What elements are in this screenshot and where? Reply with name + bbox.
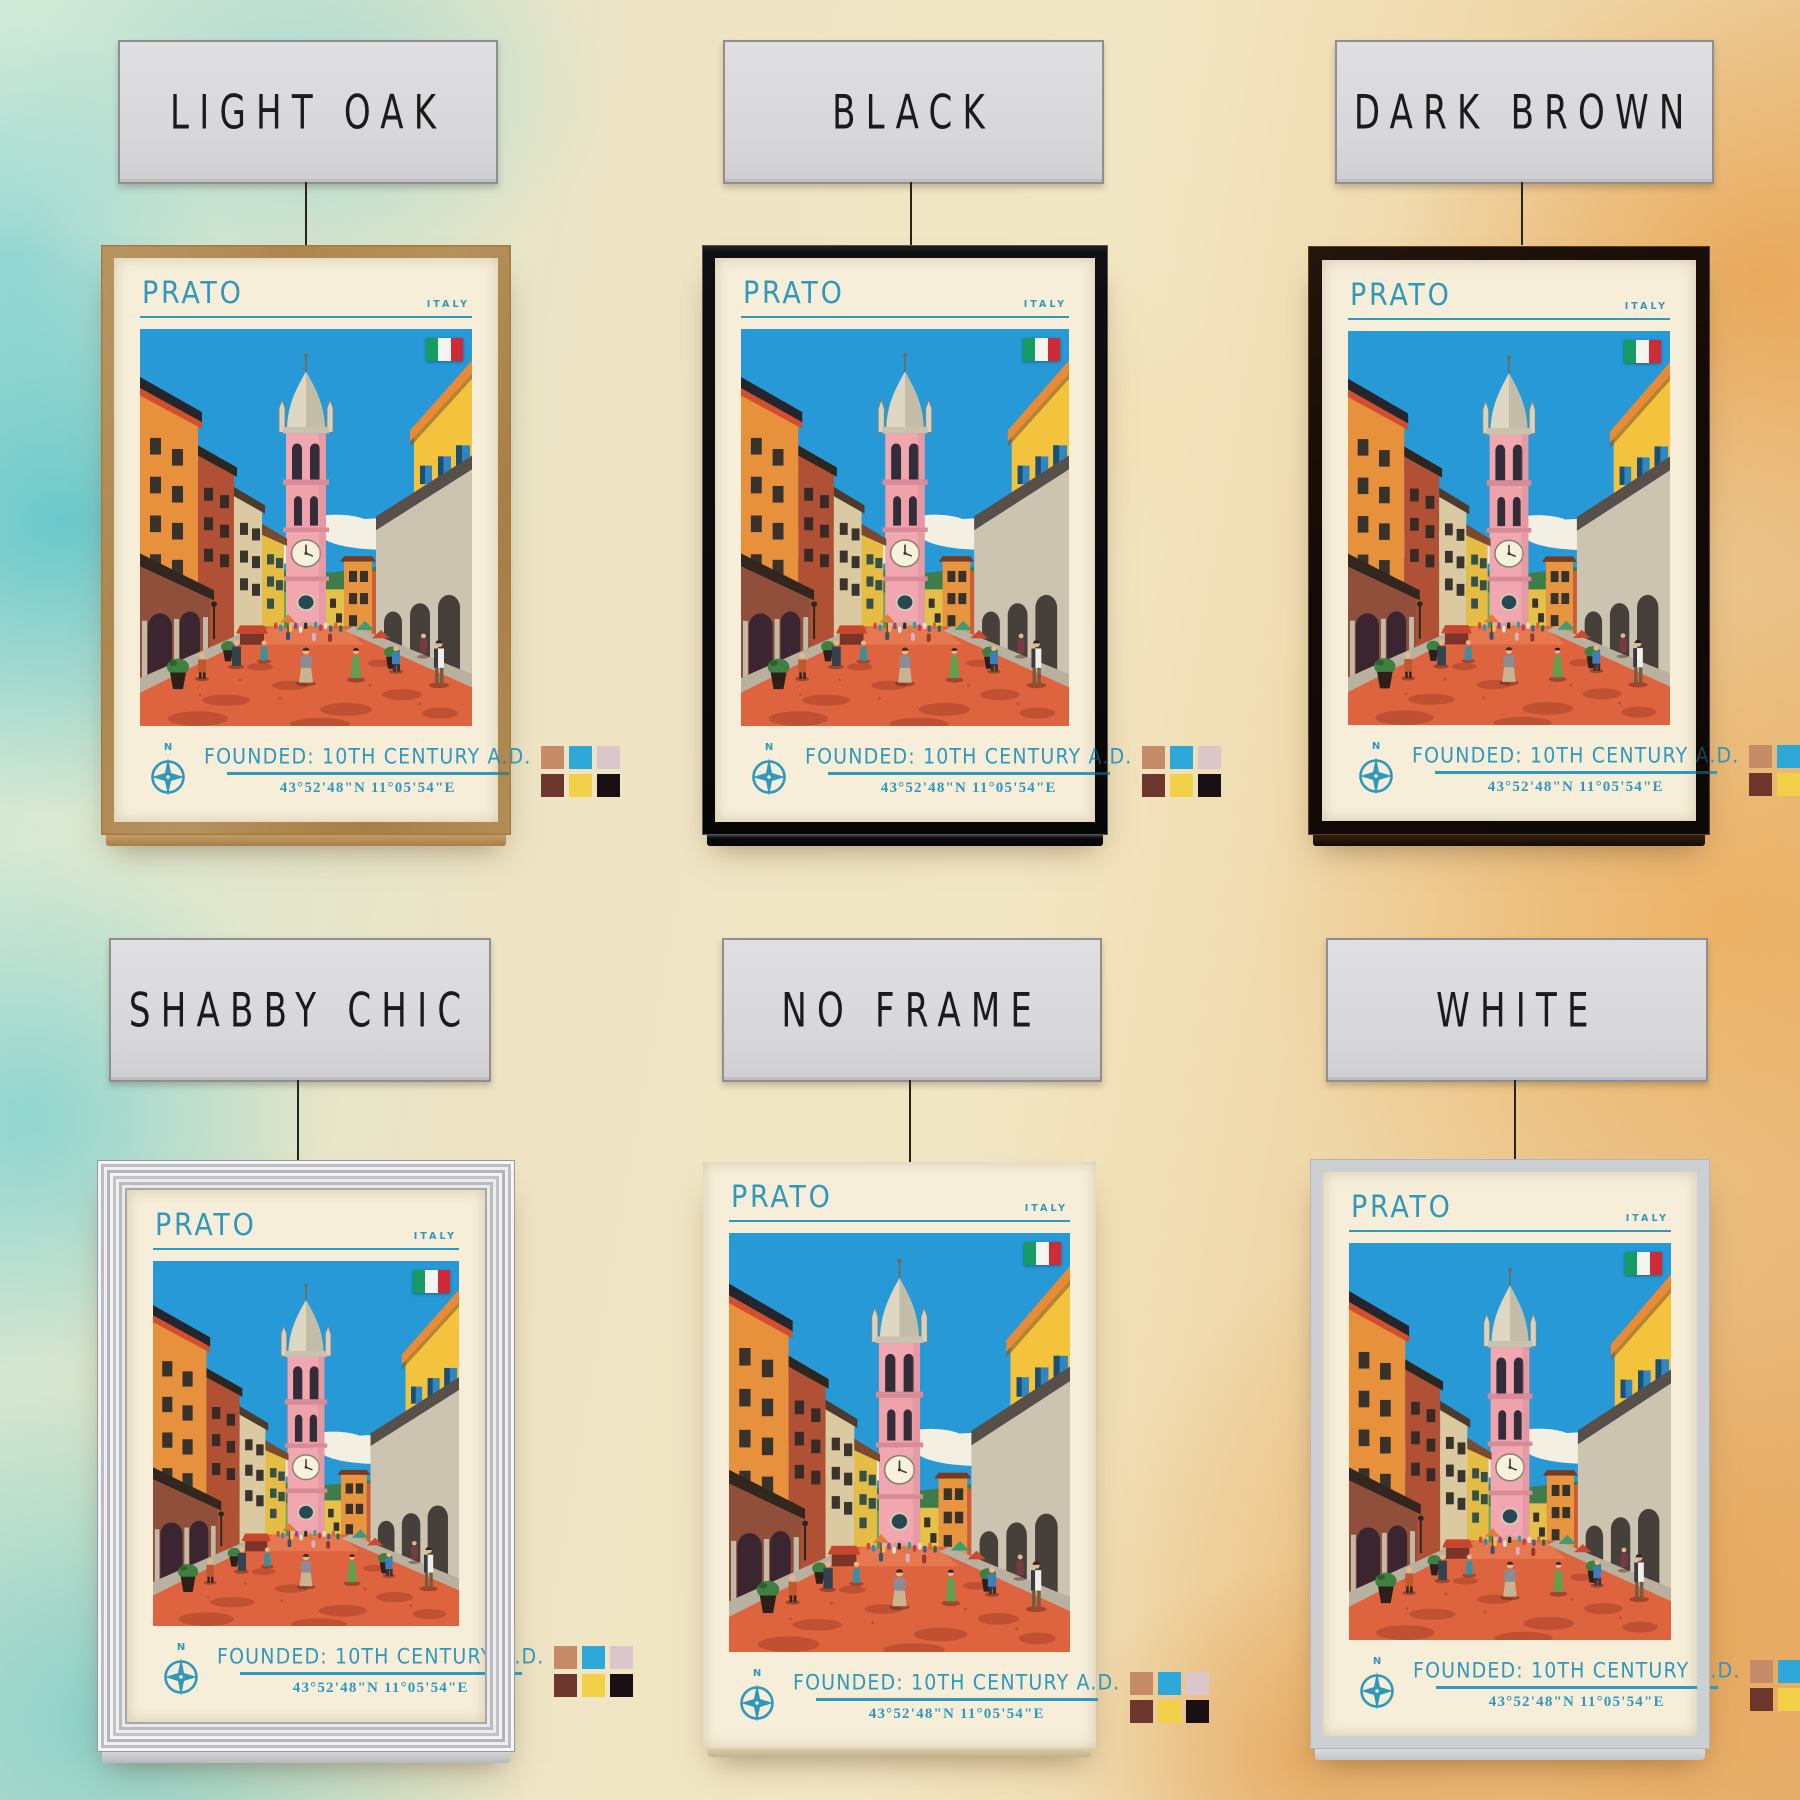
hanging-string	[305, 182, 307, 245]
palette-swatch	[1130, 1700, 1153, 1723]
poster-footer: N FOUNDED: 10TH CENTURY A.D. 43°52'48"N …	[153, 1626, 459, 1710]
coordinates-text: 43°52'48"N 11°05'54"E	[217, 1680, 544, 1697]
color-palette	[1142, 746, 1221, 797]
label-text: SHABBY CHIC	[129, 982, 471, 1037]
founded-text: FOUNDED: 10TH CENTURY A.D.	[1412, 743, 1739, 767]
label-text: NO FRAME	[782, 982, 1043, 1037]
color-palette	[1749, 745, 1800, 796]
palette-swatch	[569, 774, 592, 797]
street-scene-illustration	[153, 1261, 459, 1626]
palette-swatch	[569, 746, 592, 769]
flag-stripe-white	[438, 338, 450, 361]
palette-swatch	[597, 746, 620, 769]
travel-poster: PRATO ITALY N FOUNDED: 10TH CENTURY A.D.…	[715, 258, 1095, 822]
poster-country: ITALY	[1625, 301, 1668, 312]
svg-text:N: N	[164, 742, 172, 753]
compass-icon: N	[743, 739, 795, 803]
poster-title: PRATO	[142, 276, 244, 311]
frame-option-label-black: BLACK	[723, 40, 1104, 184]
color-palette	[541, 746, 620, 797]
palette-swatch	[1750, 1688, 1773, 1711]
label-text: WHITE	[1436, 982, 1599, 1037]
footer-text-block: FOUNDED: 10TH CENTURY A.D. 43°52'48"N 11…	[805, 746, 1132, 797]
poster-illustration	[729, 1233, 1070, 1652]
poster-header: PRATO ITALY	[729, 1184, 1070, 1222]
palette-swatch	[554, 1646, 577, 1669]
compass-icon: N	[142, 739, 194, 803]
poster-title: PRATO	[155, 1208, 257, 1243]
flag-stripe-red	[1049, 1242, 1061, 1265]
palette-swatch	[1142, 774, 1165, 797]
flag-stripe-red	[451, 338, 463, 361]
palette-swatch	[1777, 773, 1800, 796]
street-scene-illustration	[140, 329, 472, 726]
palette-swatch	[1186, 1672, 1209, 1695]
flag-stripe-white	[1036, 1242, 1048, 1265]
framed-poster-dark-brown: PRATO ITALY N FOUNDED: 10TH CENTURY A.D.…	[1308, 246, 1710, 835]
frame-black: PRATO ITALY N FOUNDED: 10TH CENTURY A.D.…	[702, 245, 1108, 835]
svg-text:N: N	[1373, 1656, 1381, 1667]
footer-divider	[816, 1698, 1098, 1701]
frame-dark-brown: PRATO ITALY N FOUNDED: 10TH CENTURY A.D.…	[1308, 246, 1710, 835]
palette-swatch	[1778, 1660, 1800, 1683]
color-palette	[1130, 1672, 1209, 1723]
color-palette	[1750, 1660, 1800, 1711]
footer-divider	[240, 1672, 522, 1675]
poster-header: PRATO ITALY	[1349, 1194, 1671, 1232]
footer-text-block: FOUNDED: 10TH CENTURY A.D. 43°52'48"N 11…	[1412, 745, 1739, 796]
framed-poster-black: PRATO ITALY N FOUNDED: 10TH CENTURY A.D.…	[702, 245, 1108, 835]
flag-stripe-green	[1624, 340, 1636, 363]
palette-swatch	[610, 1646, 633, 1669]
frame-bottom-edge	[106, 835, 506, 846]
footer-text-block: FOUNDED: 10TH CENTURY A.D. 43°52'48"N 11…	[204, 746, 531, 797]
palette-swatch	[1749, 745, 1772, 768]
street-scene-illustration	[1348, 331, 1670, 725]
travel-poster: PRATO ITALY N FOUNDED: 10TH CENTURY A.D.…	[127, 1190, 485, 1722]
palette-swatch	[1170, 746, 1193, 769]
palette-swatch	[610, 1674, 633, 1697]
palette-swatch	[1142, 746, 1165, 769]
founded-text: FOUNDED: 10TH CENTURY A.D.	[793, 1670, 1120, 1694]
poster-country: ITALY	[427, 299, 470, 310]
flag-stripe-green	[1625, 1252, 1637, 1275]
footer-divider	[1435, 771, 1717, 774]
flag-stripe-white	[1637, 1252, 1649, 1275]
hanging-string	[1514, 1080, 1516, 1159]
flag-stripe-green	[413, 1270, 425, 1293]
footer-divider	[1436, 1686, 1718, 1689]
founded-text: FOUNDED: 10TH CENTURY A.D.	[1413, 1658, 1740, 1682]
palette-swatch	[1777, 745, 1800, 768]
svg-text:N: N	[177, 1642, 185, 1653]
frame-white: PRATO ITALY N FOUNDED: 10TH CENTURY A.D.…	[1310, 1159, 1710, 1749]
compass-icon: N	[1350, 738, 1402, 802]
palette-swatch	[597, 774, 620, 797]
palette-swatch	[1170, 774, 1193, 797]
frame-option-label-no-frame: NO FRAME	[722, 938, 1102, 1082]
poster-bottom-edge	[708, 1748, 1091, 1757]
street-scene-illustration	[1349, 1243, 1671, 1640]
flag-stripe-red	[1650, 1252, 1662, 1275]
unframed-poster: PRATO ITALY N FOUNDED: 10TH CENTURY A.D.…	[703, 1162, 1096, 1748]
poster-illustration	[1349, 1243, 1671, 1640]
flag-stripe-red	[1048, 338, 1060, 361]
hanging-string	[910, 182, 912, 245]
footer-divider	[828, 772, 1110, 775]
product-mockup-image: LIGHT OAK BLACK DARK BROWN PRATO ITALY N	[0, 0, 1800, 1800]
palette-swatch	[541, 746, 564, 769]
flag-stripe-green	[1024, 1242, 1036, 1265]
svg-text:N: N	[765, 742, 773, 753]
flag-stripe-white	[425, 1270, 437, 1293]
poster-title: PRATO	[1351, 1190, 1453, 1225]
palette-swatch	[554, 1674, 577, 1697]
italy-flag-icon	[1023, 338, 1060, 361]
frame-bottom-edge	[707, 835, 1103, 846]
frame-light-oak: PRATO ITALY N FOUNDED: 10TH CENTURY A.D.…	[101, 245, 511, 835]
street-scene-illustration	[741, 329, 1069, 726]
hanging-string	[297, 1080, 299, 1160]
flag-stripe-green	[1023, 338, 1035, 361]
poster-footer: N FOUNDED: 10TH CENTURY A.D. 43°52'48"N …	[1349, 1640, 1671, 1724]
italy-flag-icon	[413, 1270, 450, 1293]
founded-text: FOUNDED: 10TH CENTURY A.D.	[805, 744, 1132, 768]
compass-icon: N	[1351, 1653, 1403, 1717]
palette-swatch	[1749, 773, 1772, 796]
compass-icon: N	[731, 1665, 783, 1729]
poster-title: PRATO	[1350, 278, 1452, 313]
palette-swatch	[1158, 1700, 1181, 1723]
italy-flag-icon	[426, 338, 463, 361]
frame-option-label-light-oak: LIGHT OAK	[118, 40, 498, 184]
poster-illustration	[153, 1261, 459, 1626]
hanging-string	[1521, 182, 1523, 245]
coordinates-text: 43°52'48"N 11°05'54"E	[1412, 779, 1739, 796]
compass-icon: N	[155, 1639, 207, 1703]
poster-country: ITALY	[1025, 1203, 1068, 1214]
palette-swatch	[582, 1674, 605, 1697]
travel-poster: PRATO ITALY N FOUNDED: 10TH CENTURY A.D.…	[703, 1162, 1096, 1748]
travel-poster: PRATO ITALY N FOUNDED: 10TH CENTURY A.D.…	[114, 258, 498, 822]
frame-shabby-chic: PRATO ITALY N FOUNDED: 10TH CENTURY A.D.…	[97, 1160, 515, 1752]
poster-footer: N FOUNDED: 10TH CENTURY A.D. 43°52'48"N …	[1348, 725, 1670, 809]
framed-poster-shabby-chic: PRATO ITALY N FOUNDED: 10TH CENTURY A.D.…	[97, 1160, 515, 1752]
poster-illustration	[140, 329, 472, 726]
label-text: DARK BROWN	[1354, 84, 1695, 139]
travel-poster: PRATO ITALY N FOUNDED: 10TH CENTURY A.D.…	[1323, 1172, 1697, 1736]
street-scene-illustration	[729, 1233, 1070, 1652]
svg-text:N: N	[1372, 741, 1380, 752]
poster-illustration	[741, 329, 1069, 726]
frame-bottom-edge	[102, 1752, 510, 1763]
flag-stripe-red	[438, 1270, 450, 1293]
poster-title: PRATO	[743, 276, 845, 311]
footer-text-block: FOUNDED: 10TH CENTURY A.D. 43°52'48"N 11…	[217, 1646, 544, 1697]
palette-swatch	[1198, 774, 1221, 797]
coordinates-text: 43°52'48"N 11°05'54"E	[793, 1706, 1120, 1723]
coordinates-text: 43°52'48"N 11°05'54"E	[204, 780, 531, 797]
frame-bottom-edge	[1315, 1749, 1705, 1760]
no-frame: PRATO ITALY N FOUNDED: 10TH CENTURY A.D.…	[703, 1162, 1096, 1748]
footer-text-block: FOUNDED: 10TH CENTURY A.D. 43°52'48"N 11…	[793, 1672, 1120, 1723]
poster-header: PRATO ITALY	[153, 1212, 459, 1250]
poster-country: ITALY	[1024, 299, 1067, 310]
palette-swatch	[1130, 1672, 1153, 1695]
travel-poster: PRATO ITALY N FOUNDED: 10TH CENTURY A.D.…	[1322, 260, 1696, 821]
label-text: LIGHT OAK	[170, 84, 446, 139]
poster-header: PRATO ITALY	[140, 280, 472, 318]
hanging-string	[909, 1080, 911, 1162]
poster-title: PRATO	[731, 1180, 833, 1215]
flag-stripe-green	[426, 338, 438, 361]
flag-stripe-white	[1035, 338, 1047, 361]
founded-text: FOUNDED: 10TH CENTURY A.D.	[204, 744, 531, 768]
poster-footer: N FOUNDED: 10TH CENTURY A.D. 43°52'48"N …	[140, 726, 472, 810]
framed-poster-white: PRATO ITALY N FOUNDED: 10TH CENTURY A.D.…	[1310, 1159, 1710, 1749]
frame-option-label-dark-brown: DARK BROWN	[1335, 40, 1714, 184]
palette-swatch	[582, 1646, 605, 1669]
palette-swatch	[1198, 746, 1221, 769]
poster-header: PRATO ITALY	[1348, 282, 1670, 320]
poster-footer: N FOUNDED: 10TH CENTURY A.D. 43°52'48"N …	[741, 726, 1069, 810]
frame-option-label-white: WHITE	[1326, 938, 1708, 1082]
founded-text: FOUNDED: 10TH CENTURY A.D.	[217, 1644, 544, 1668]
flag-stripe-white	[1636, 340, 1648, 363]
italy-flag-icon	[1624, 340, 1661, 363]
poster-country: ITALY	[1626, 1213, 1669, 1224]
poster-header: PRATO ITALY	[741, 280, 1069, 318]
flag-stripe-red	[1649, 340, 1661, 363]
palette-swatch	[1750, 1660, 1773, 1683]
frame-bottom-edge	[1313, 835, 1705, 846]
coordinates-text: 43°52'48"N 11°05'54"E	[1413, 1694, 1740, 1711]
italy-flag-icon	[1024, 1242, 1061, 1265]
framed-poster-light-oak: PRATO ITALY N FOUNDED: 10TH CENTURY A.D.…	[101, 245, 511, 835]
label-text: BLACK	[832, 84, 995, 139]
palette-swatch	[1778, 1688, 1800, 1711]
footer-divider	[227, 772, 509, 775]
palette-swatch	[1158, 1672, 1181, 1695]
palette-swatch	[1186, 1700, 1209, 1723]
poster-footer: N FOUNDED: 10TH CENTURY A.D. 43°52'48"N …	[729, 1652, 1070, 1736]
italy-flag-icon	[1625, 1252, 1662, 1275]
coordinates-text: 43°52'48"N 11°05'54"E	[805, 780, 1132, 797]
frame-option-label-shabby-chic: SHABBY CHIC	[109, 938, 491, 1082]
color-palette	[554, 1646, 633, 1697]
poster-country: ITALY	[414, 1231, 457, 1242]
svg-text:N: N	[753, 1668, 761, 1679]
footer-text-block: FOUNDED: 10TH CENTURY A.D. 43°52'48"N 11…	[1413, 1660, 1740, 1711]
palette-swatch	[541, 774, 564, 797]
poster-illustration	[1348, 331, 1670, 725]
